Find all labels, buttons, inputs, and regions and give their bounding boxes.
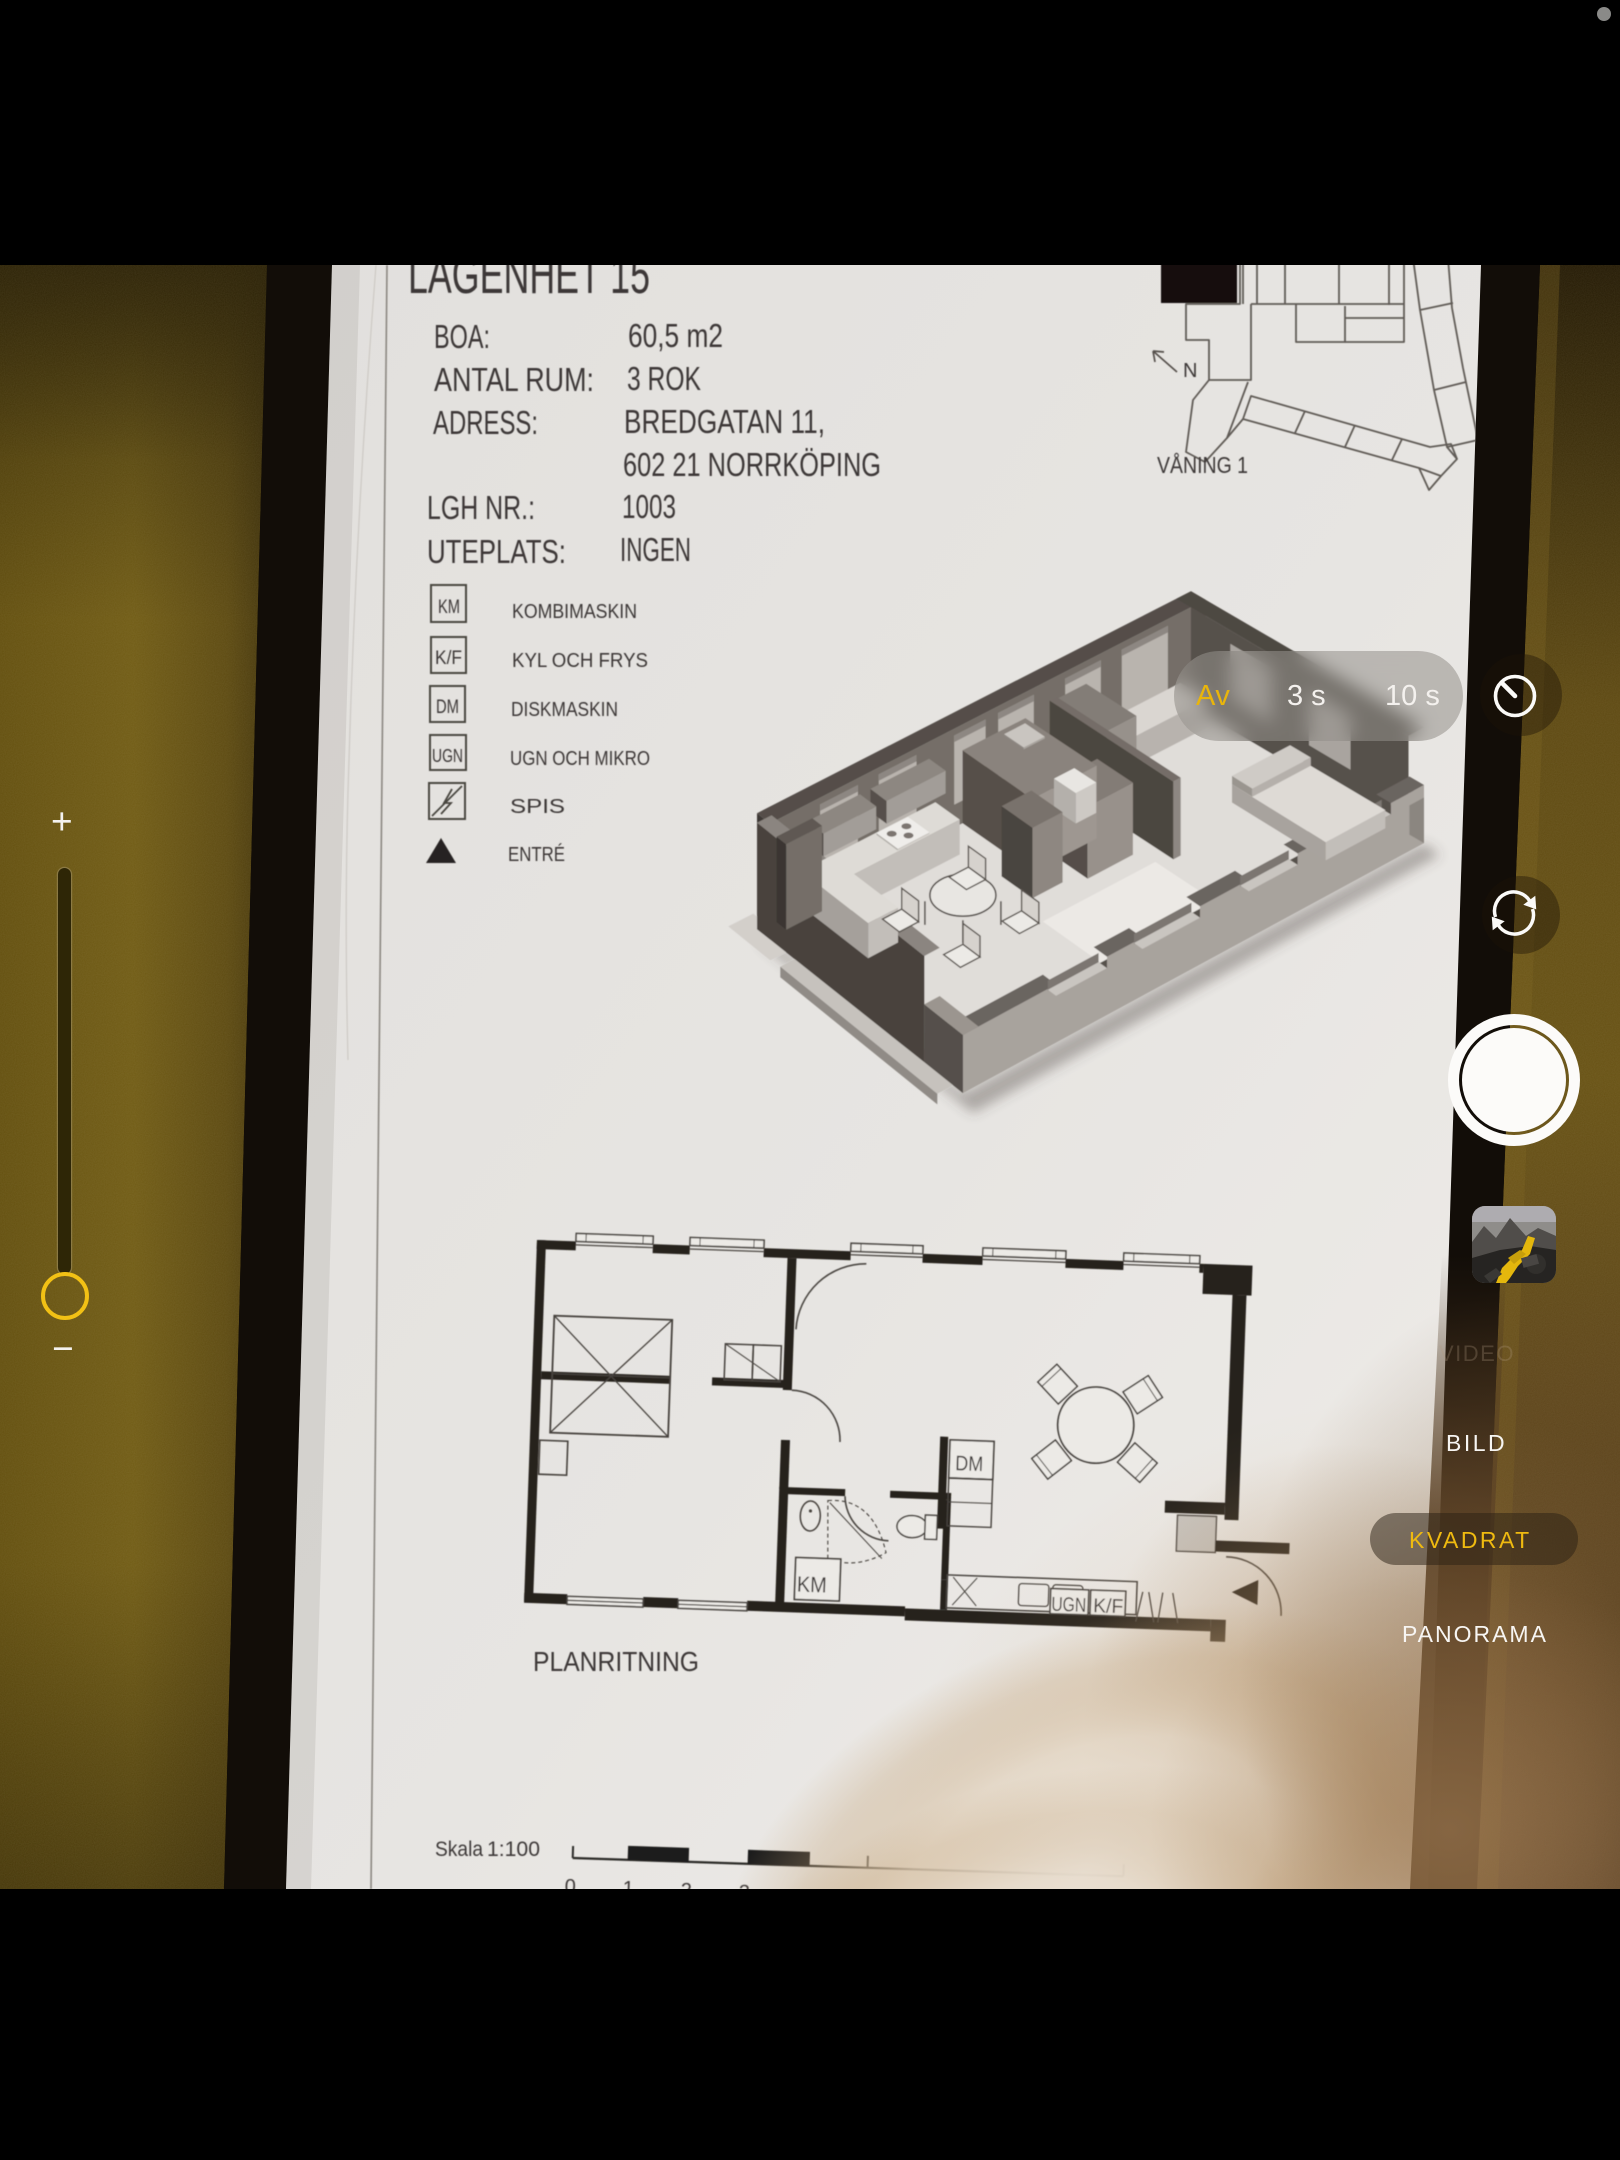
svg-text:KYL OCH FRYS: KYL OCH FRYS — [512, 650, 648, 672]
svg-text:KM: KM — [438, 597, 460, 618]
svg-text:INGEN: INGEN — [620, 531, 691, 568]
svg-text:K/F: K/F — [435, 648, 462, 669]
svg-text:N: N — [1183, 360, 1197, 382]
svg-text:KM: KM — [796, 1572, 827, 1598]
svg-text:3 ROK: 3 ROK — [627, 360, 701, 397]
svg-text:1003: 1003 — [622, 488, 676, 525]
svg-text:ADRESS:: ADRESS: — [433, 404, 538, 441]
svg-text:LGH NR.:: LGH NR.: — [427, 489, 535, 526]
svg-text:ENTRÉ: ENTRÉ — [508, 843, 565, 866]
svg-text:VÅNING 1: VÅNING 1 — [1157, 451, 1248, 478]
svg-text:PLANRITNING: PLANRITNING — [533, 1646, 699, 1677]
svg-text:SPIS: SPIS — [510, 796, 565, 818]
svg-text:ANTAL RUM:: ANTAL RUM: — [434, 361, 594, 398]
svg-text:BREDGATAN 11,: BREDGATAN 11, — [624, 403, 825, 440]
svg-text:UTEPLATS:: UTEPLATS: — [427, 533, 566, 570]
svg-text:Skala: Skala — [435, 1838, 483, 1861]
svg-text:BOA:: BOA: — [434, 318, 490, 355]
svg-text:60,5 m2: 60,5 m2 — [628, 317, 723, 354]
svg-text:UGN: UGN — [432, 746, 463, 766]
svg-text:DM: DM — [955, 1452, 984, 1476]
svg-text:602 21 NORRKÖPING: 602 21 NORRKÖPING — [623, 446, 881, 483]
svg-text:UGN OCH MIKRO: UGN OCH MIKRO — [510, 748, 650, 770]
svg-text:KOMBIMASKIN: KOMBIMASKIN — [512, 601, 637, 623]
svg-text:DISKMASKIN: DISKMASKIN — [511, 699, 618, 721]
svg-text:1:100: 1:100 — [487, 1838, 540, 1861]
svg-text:DM: DM — [436, 697, 459, 718]
